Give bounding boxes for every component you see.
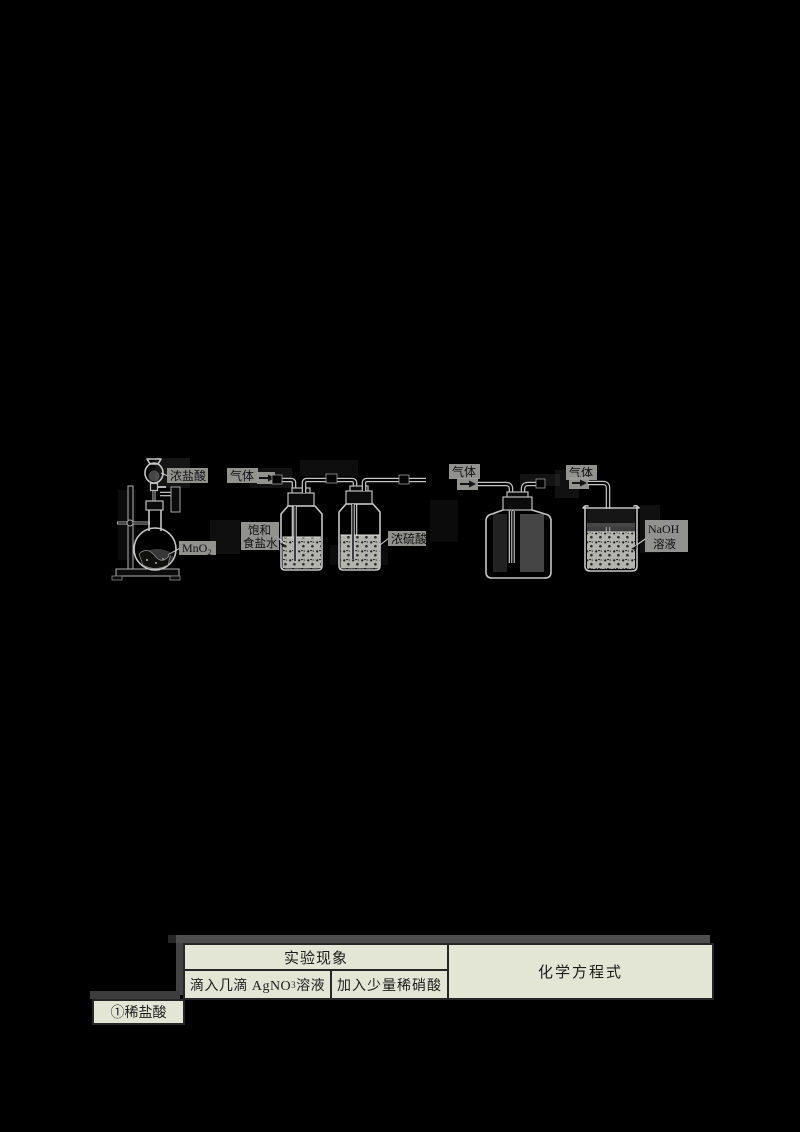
gas-label-collection: 气体 — [449, 464, 480, 490]
conc-h2so4-liquid — [341, 535, 380, 569]
gas-collection-bottle-apparatus: 气体 — [449, 464, 551, 578]
svg-text:饱和: 饱和 — [248, 523, 271, 537]
header-equation-text: 化学方程式 — [538, 961, 623, 982]
svg-text:气体: 气体 — [230, 468, 254, 483]
naoh-solution-label: NaOH 溶液 — [631, 520, 688, 552]
table-subheader-hno3: 加入少量稀硝酸 — [332, 971, 449, 998]
table-left-shadow — [176, 943, 183, 995]
rubber-joint — [399, 475, 409, 484]
wash-bottle-train: 气体 — [227, 468, 427, 570]
dilute-hcl-text: ①稀盐酸 — [111, 1002, 167, 1022]
naoh-liquid — [587, 532, 635, 569]
svg-text:食盐水: 食盐水 — [243, 536, 278, 550]
table-subheader-agno3: 滴入几滴 AgNO3溶液 — [185, 971, 332, 998]
outlet-connector — [171, 487, 180, 512]
saturated-brine-label: 饱和 食盐水 — [241, 522, 286, 550]
conc-h2so4-label: 浓硫酸 — [380, 531, 427, 546]
results-table: 实验现象 滴入几滴 AgNO3溶液 加入少量稀硝酸 化学方程式 — [183, 943, 714, 1000]
agno3-suffix-text: 溶液 — [296, 975, 325, 995]
tail-gas-absorption-apparatus: 气体 NaOH 溶液 — [566, 465, 688, 571]
collection-bottle — [486, 492, 551, 578]
saturated-brine-liquid — [283, 537, 322, 569]
svg-text:气体: 气体 — [452, 464, 476, 479]
row-label-dilute-hcl: ①稀盐酸 — [92, 999, 185, 1025]
table-header-equation: 化学方程式 — [449, 945, 712, 998]
header-phenomena-text: 实验现象 — [284, 947, 348, 968]
stopcock — [151, 484, 158, 491]
row-label-top-shadow — [90, 991, 180, 999]
rubber-joint — [272, 475, 282, 484]
beaker — [583, 506, 639, 571]
wash-bottle-1 — [281, 488, 322, 570]
svg-text:浓盐酸: 浓盐酸 — [170, 468, 206, 483]
table-header-phenomena: 实验现象 — [185, 945, 449, 971]
svg-text:NaOH: NaOH — [648, 522, 680, 536]
agno3-prefix-text: 滴入几滴 AgNO — [190, 975, 291, 995]
table-top-shadow — [176, 935, 710, 943]
rubber-joint — [326, 474, 337, 483]
conc-hcl-label: 浓盐酸 — [161, 468, 208, 483]
round-bottom-flask — [134, 528, 176, 570]
rubber-joint — [536, 479, 545, 488]
flask-stopper — [146, 501, 163, 510]
svg-text:MnO2: MnO2 — [182, 541, 212, 557]
worksheet-page: 浓盐酸 MnO2 气体 — [0, 0, 800, 1132]
gas-label-absorption: 气体 — [566, 465, 597, 489]
wash-bottle-2 — [339, 486, 380, 570]
svg-text:浓硫酸: 浓硫酸 — [391, 531, 427, 546]
hno3-text: 加入少量稀硝酸 — [337, 975, 442, 995]
svg-text:溶液: 溶液 — [653, 537, 676, 551]
